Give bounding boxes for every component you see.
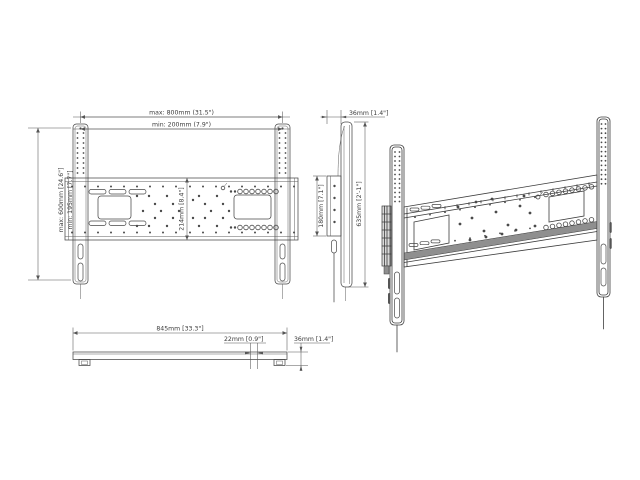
front-right-opening (234, 195, 271, 219)
side-plate-height-label: 180mm [7.1"] (318, 184, 325, 227)
side-depth-label: 36mm [1.4"] (349, 110, 388, 117)
persp-left-rail (388, 145, 404, 352)
bottom-bar (73, 352, 287, 366)
bottom-dimensions: 845mm [33.3"] 22mm [0.9"] 36mm [1.4"] (73, 326, 333, 372)
front-view: max: 800mm (31.5") min: 200mm (7.9") max… (28, 110, 298, 300)
persp-right-opening (549, 191, 584, 222)
front-height-min-label: min: 195mm [7.7"] (67, 170, 74, 229)
front-left-rail-holes (77, 132, 85, 174)
side-dimensions: 36mm [1.4"] 180mm [7.1"] 635mm [2'-1"] (313, 110, 388, 287)
front-left-rail (73, 124, 88, 299)
bottom-offset-label: 22mm [0.9"] (224, 336, 263, 343)
front-width-max-label: max: 800mm (31.5") (149, 110, 214, 117)
persp-right-rail-holes (601, 123, 607, 185)
front-plate-scatter-holes (136, 190, 236, 228)
persp-ring-holes (544, 185, 594, 230)
side-rail (338, 122, 352, 301)
side-view: 36mm [1.4"] 180mm [7.1"] 635mm [2'-1"] (313, 110, 388, 302)
bottom-depth-label: 36mm [1.4"] (294, 336, 333, 343)
bottom-view: 845mm [33.3"] 22mm [0.9"] 36mm [1.4"] (73, 326, 333, 372)
technical-drawing-canvas: max: 800mm (31.5") min: 200mm (7.9") max… (0, 0, 640, 480)
front-left-opening (98, 196, 131, 219)
front-right-rail (275, 124, 290, 299)
front-detail-hole (221, 186, 225, 190)
front-right-rail-holes (279, 132, 287, 174)
persp-right-rail (597, 117, 612, 329)
front-plate-height-label: 214mm [8.4"] (179, 187, 186, 230)
bottom-width-label: 845mm [33.3"] (156, 326, 203, 333)
drawing-svg: max: 800mm (31.5") min: 200mm (7.9") max… (0, 0, 640, 480)
side-rail-height-label: 635mm [2'-1"] (356, 181, 363, 226)
persp-bottom-flange (404, 222, 597, 261)
front-height-max-label: max: 600mm [24.6"] (58, 168, 65, 233)
front-width-min-label: min: 200mm (7.9") (152, 122, 211, 129)
perspective-view (382, 117, 612, 352)
persp-left-rail-holes (394, 151, 400, 202)
persp-left-opening (414, 215, 449, 250)
side-wall-plate-section (327, 176, 341, 302)
persp-wall-plate (404, 175, 597, 267)
